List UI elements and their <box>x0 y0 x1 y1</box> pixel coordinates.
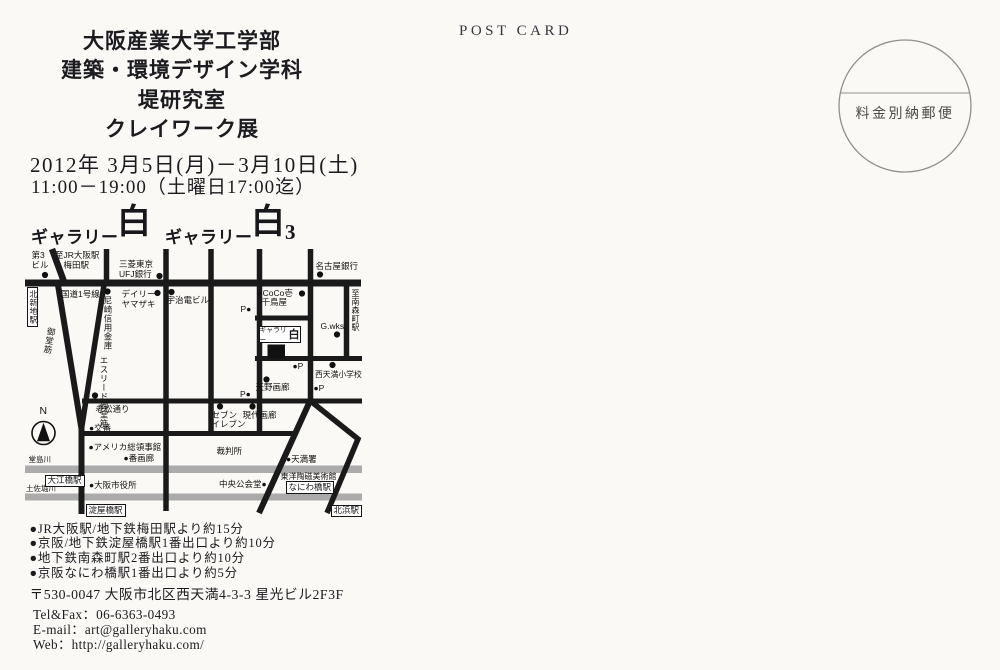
map-label: ●番画廊 <box>124 454 155 464</box>
map-gallery-box-prefix: ギャラリー <box>260 324 288 344</box>
map-label: 宇治電ビル <box>167 296 210 306</box>
map-label: 淀屋橋駅 <box>86 504 126 517</box>
map-label: ●交番 <box>89 424 111 434</box>
map-label: G.wks. <box>321 322 347 332</box>
access-directions: ●JR大阪駅/地下鉄梅田駅より約15分 ●京阪/地下鉄淀屋橋駅1番出口より約10… <box>30 522 276 582</box>
map-dot <box>249 403 255 409</box>
map-dot <box>156 273 162 279</box>
map-label: 西天満小学校 <box>315 371 362 380</box>
access-line-yodoyabashi: ●京阪/地下鉄淀屋橋駅1番出口より約10分 <box>30 536 276 551</box>
gallery-haku-logo-1: 白 <box>117 206 151 240</box>
map-dot <box>329 362 335 368</box>
map-label: 第3 ビル <box>32 251 49 270</box>
map-label: 千鳥屋 <box>262 298 288 308</box>
map-label: 名古屋銀行 <box>316 262 359 272</box>
gallery-name-2-number: 3 <box>285 220 296 245</box>
map-label: 国道1号線 <box>61 290 100 300</box>
email-line: E-mail：art@galleryhaku.com <box>33 622 207 637</box>
map-gallery-box: ギャラリー 白 <box>259 326 301 344</box>
gallery-address: 〒530-0047 大阪市北区西天満4-3-3 星光ビル2F3F <box>30 583 344 603</box>
map-label: 堂島川 <box>29 456 52 464</box>
tel-fax-line: Tel&Fax：06-6363-0493 <box>33 607 207 622</box>
map-label: セブン イレブン <box>212 411 246 430</box>
map-label: 天野画廊 <box>256 383 290 393</box>
exhibition-title-block: 大阪産業大学工学部 建築・環境デザイン学科 堤研究室 クレイワーク展 <box>32 27 332 144</box>
map-dot <box>42 272 48 278</box>
map-label: P● <box>241 305 252 315</box>
title-line-lab: 堤研究室 <box>32 86 332 115</box>
access-line-jr: ●JR大阪駅/地下鉄梅田駅より約15分 <box>30 522 276 537</box>
map-label: 裁判所 <box>217 447 243 457</box>
map-label: ●大阪市役所 <box>89 481 137 491</box>
map-gallery-box-logo: 白 <box>289 326 300 342</box>
stamp-text: 料金別納郵便 <box>843 103 967 123</box>
map-label: ●P <box>314 384 325 394</box>
map-dot <box>334 331 340 337</box>
contact-block: Tel&Fax：06-6363-0493 E-mail：art@galleryh… <box>33 607 207 653</box>
map-label: P● <box>240 390 251 400</box>
map-label: エスリード御堂筋 <box>99 356 109 403</box>
title-line-exhibition: クレイワーク展 <box>32 115 332 144</box>
map-dot <box>217 403 223 409</box>
access-line-naniwabashi: ●京阪なにわ橋駅1番出口より約5分 <box>30 566 276 581</box>
map-label: N <box>40 406 48 418</box>
map-label: 現代画廊 <box>243 411 277 421</box>
gallery-name-2-prefix: ギャラリー <box>165 223 253 248</box>
web-line: Web：http://galleryhaku.com/ <box>33 637 207 652</box>
river-tosabori <box>25 494 362 501</box>
map-label: 大江橋駅 <box>45 475 85 488</box>
exhibition-hours: 11:00－19:00（土曜日17:00迄） <box>31 172 315 199</box>
map-label: 御堂筋 <box>42 326 56 354</box>
map-dot <box>299 290 305 296</box>
map-label: 中央公会堂● <box>219 480 267 490</box>
map-label: なにわ橋駅 <box>286 481 335 494</box>
map-label: 至南森町駅 <box>350 289 359 332</box>
map-label: ●天満署 <box>286 455 317 465</box>
gallery-building-marker <box>268 345 286 359</box>
map-label: ●アメリカ総領事館 <box>89 443 162 453</box>
map-dot <box>104 288 110 294</box>
map-label: ●P <box>293 362 304 372</box>
map-label: 至JR大阪駅 梅田駅 <box>55 251 99 270</box>
map-label: 尼崎信用金庫 <box>103 296 113 350</box>
map-label: 三菱東京 UFJ銀行 <box>119 260 153 279</box>
map-label: デイリー ヤマザキ <box>122 290 156 309</box>
postcard: POST CARD 料金別納郵便 大阪産業大学工学部 建築・環境デザイン学科 堤… <box>0 0 1000 670</box>
gallery-haku-logo-2: 白 <box>251 206 285 240</box>
map-label: 北浜駅 <box>331 505 363 518</box>
access-line-minamimorimachi: ●地下鉄南森町駅2番出口より約10分 <box>30 551 276 566</box>
map-dot <box>92 392 98 398</box>
map-label: 老松通り <box>96 405 130 415</box>
map-label: 北新地駅 <box>27 287 39 327</box>
gallery-name-1-prefix: ギャラリー <box>31 223 119 248</box>
post-card-label: POST CARD <box>459 23 572 40</box>
compass-icon <box>32 422 55 445</box>
title-line-university: 大阪産業大学工学部 <box>32 27 332 56</box>
map-dot <box>317 271 323 277</box>
title-line-department: 建築・環境デザイン学科 <box>32 56 332 85</box>
